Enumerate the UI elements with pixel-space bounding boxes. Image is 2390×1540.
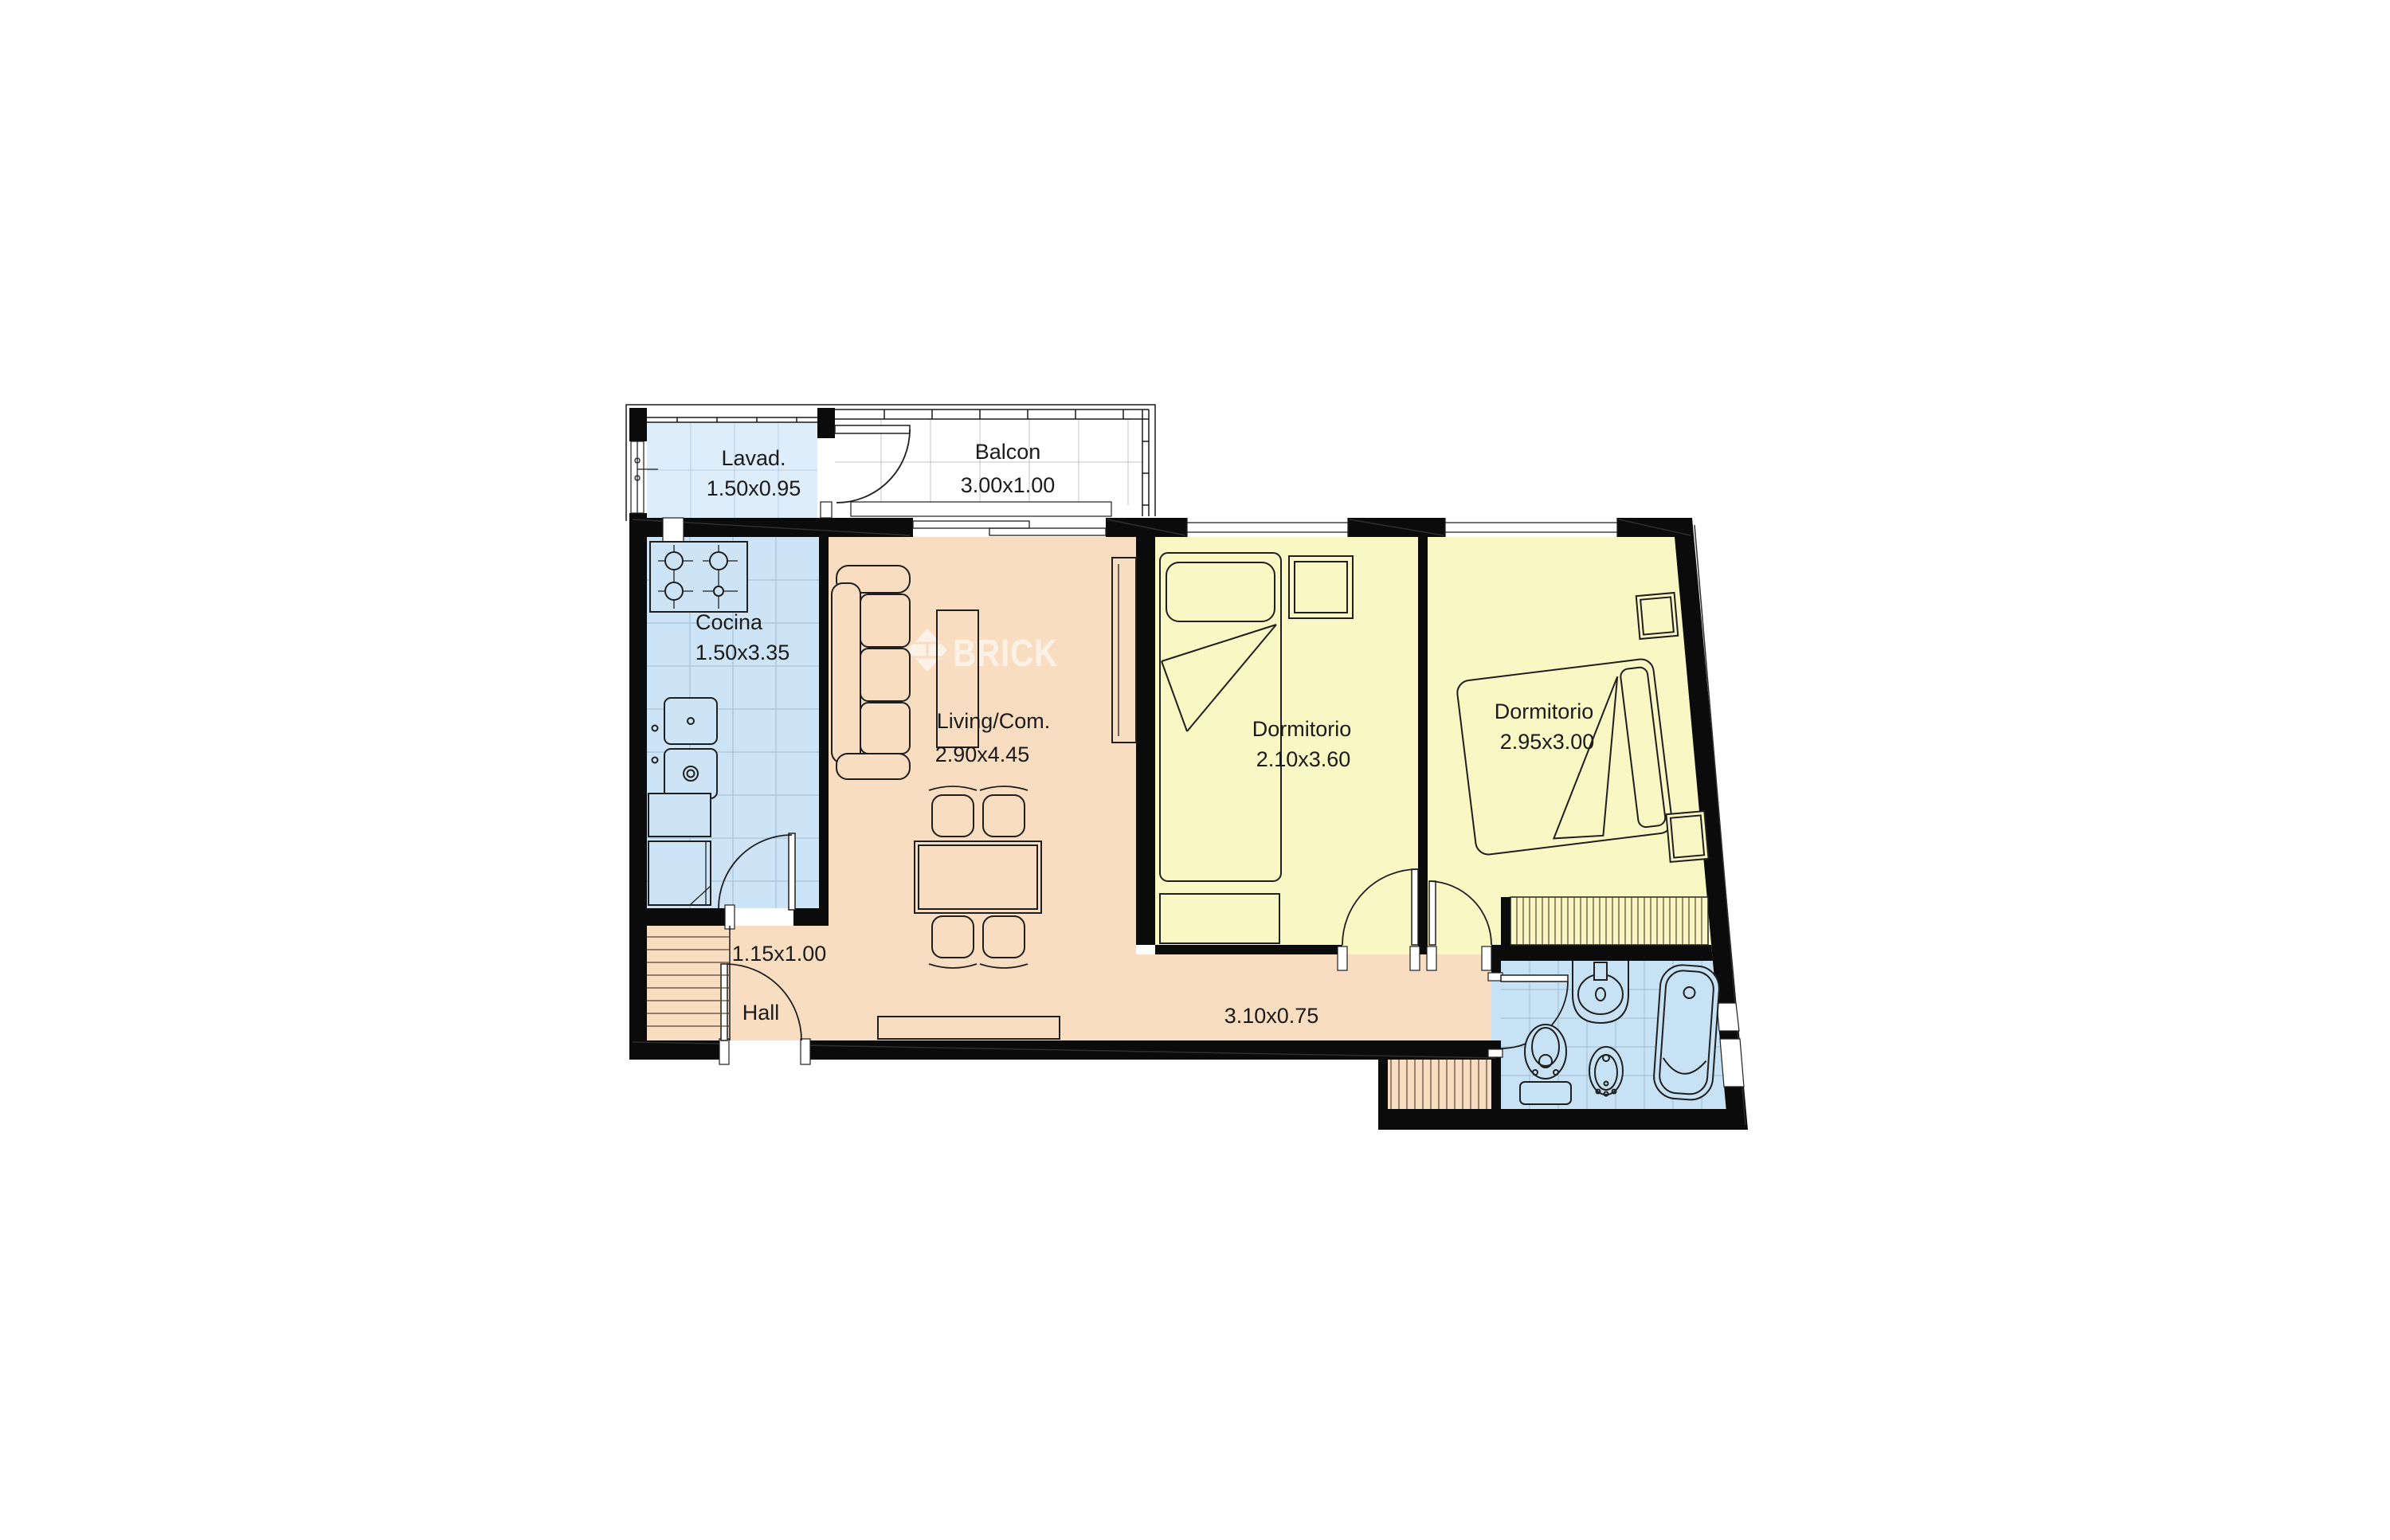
nightstand-bottom xyxy=(1666,811,1708,862)
floor-plan-page: BRICK xyxy=(597,386,1792,1155)
balcony-label: Balcon xyxy=(975,440,1041,464)
laundry-label: Lavad. xyxy=(721,446,786,470)
bedroom1-dims: 2.10x3.60 xyxy=(1256,747,1351,771)
fridge xyxy=(648,841,711,905)
balcony-sill xyxy=(851,502,1111,516)
living-dims: 2.90x4.45 xyxy=(935,743,1030,766)
brand-watermark-text: BRICK xyxy=(953,633,1058,675)
floor-plan-canvas: BRICK xyxy=(597,386,1792,1155)
exterior-stair-floor xyxy=(1388,1060,1491,1109)
bedroom1-door-threshold xyxy=(1342,945,1418,954)
dresser xyxy=(1160,894,1279,943)
bidet xyxy=(1589,1047,1623,1096)
kitchen-label: Cocina xyxy=(695,610,763,634)
corridor-dims: 3.10x0.75 xyxy=(1224,1004,1319,1028)
bedroom2-window xyxy=(1445,518,1617,537)
brand-watermark: BRICK xyxy=(907,629,1058,675)
balcony-dims: 3.00x1.00 xyxy=(961,473,1056,497)
living-label: Living/Com. xyxy=(937,709,1051,733)
kitchen-counter xyxy=(648,794,711,837)
bathroom-door-threshold xyxy=(1491,979,1501,1051)
bedroom2-label: Dormitorio xyxy=(1495,699,1594,723)
toilet xyxy=(1520,1025,1571,1104)
nightstand-top xyxy=(1636,593,1679,639)
hall-label: Hall xyxy=(742,1001,780,1025)
bedroom2-dims: 2.95x3.00 xyxy=(1500,730,1595,754)
bathroom-sink xyxy=(1573,961,1628,1023)
bedroom2-closet xyxy=(1510,897,1708,945)
bathroom-window-upper xyxy=(1717,1003,1739,1031)
sofa xyxy=(832,566,910,779)
double-bed xyxy=(1456,657,1674,856)
dining-table xyxy=(915,841,1041,913)
kitchen-dims: 1.50x3.35 xyxy=(695,641,790,664)
bedroom1-label: Dormitorio xyxy=(1252,717,1352,741)
laundry-dims: 1.50x0.95 xyxy=(707,476,801,500)
nightstand xyxy=(1289,556,1353,618)
hall-dims: 1.15x1.00 xyxy=(732,942,827,966)
bathtub xyxy=(1652,963,1721,1101)
stove xyxy=(650,542,747,612)
bathroom-window-lower xyxy=(1720,1039,1744,1087)
bedroom1-window xyxy=(1187,518,1348,537)
